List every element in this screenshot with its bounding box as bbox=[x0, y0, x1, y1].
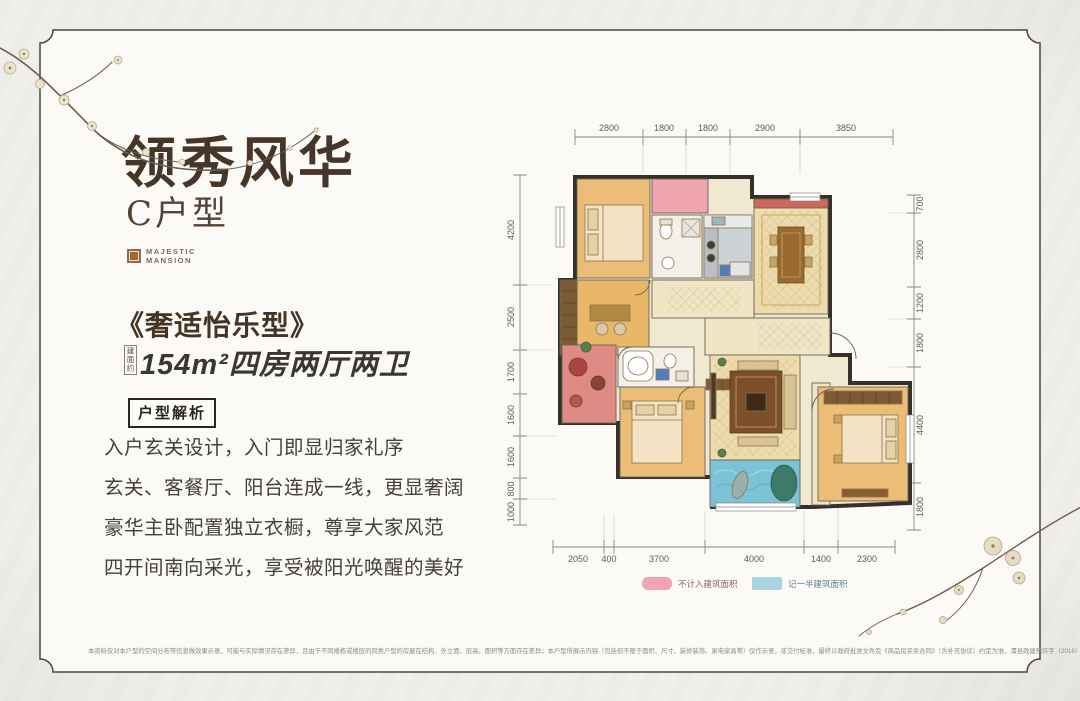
area-line: 建面约 154m²四房两厅两卫 bbox=[124, 341, 431, 383]
dim-right-5: 1800 bbox=[915, 497, 925, 517]
dim-left-5: 800 bbox=[506, 481, 516, 496]
disclaimer-text: 本资料仅对本户型的空间分布等信息做效果示意，可能与实际情况存在差异，且由于不同楼… bbox=[88, 646, 1003, 655]
dim-bottom-0: 2050 bbox=[568, 554, 588, 564]
area-prefix: 建面约 bbox=[124, 345, 137, 375]
unit-type-subtitle: C户型 bbox=[126, 186, 229, 235]
analysis-badge: 户型解析 bbox=[128, 398, 216, 428]
dim-left-0: 4200 bbox=[506, 220, 516, 240]
dim-left-3: 1600 bbox=[506, 405, 516, 425]
style-name: 《奢适怡乐型》 bbox=[116, 304, 319, 344]
area-text: 154m²四房两厅两卫 bbox=[140, 341, 409, 383]
brand-words: MAJESTIC MANSION bbox=[146, 247, 196, 266]
dim-top-4: 3850 bbox=[836, 123, 856, 133]
dim-top-3: 2900 bbox=[755, 123, 775, 133]
legend-swatch-blue bbox=[752, 577, 782, 590]
dim-left-4: 1600 bbox=[506, 447, 516, 467]
balcony-north-pink bbox=[652, 179, 708, 213]
feature-line: 豪华主卧配置独立衣橱，尊享大家风范 bbox=[104, 508, 464, 548]
dim-right-4: 4400 bbox=[915, 415, 925, 435]
dim-right-1: 2800 bbox=[915, 240, 925, 260]
brand-line1: MAJESTIC bbox=[146, 247, 196, 256]
dim-top-0: 2800 bbox=[599, 123, 619, 133]
dim-right-3: 1800 bbox=[915, 333, 925, 353]
dim-left-6: 1000 bbox=[506, 502, 516, 522]
dim-left-2: 1700 bbox=[506, 362, 516, 382]
feature-line: 玄关、客餐厅、阳台连成一线，更显奢阔 bbox=[104, 468, 464, 508]
terrace-pink bbox=[562, 345, 616, 423]
dim-bottom-2: 3700 bbox=[649, 554, 669, 564]
dims-right: 700 2800 1200 1800 4400 1800 bbox=[915, 196, 925, 517]
dim-right-2: 1200 bbox=[915, 293, 925, 313]
dim-top-2: 1800 bbox=[698, 123, 718, 133]
dims-bottom: 2050 400 3700 4000 1400 2300 bbox=[568, 554, 877, 564]
dims-left: 4200 2500 1700 1600 1600 800 1000 bbox=[506, 220, 516, 522]
feature-line: 四开间南向采光，享受被阳光唤醒的美好 bbox=[104, 548, 464, 588]
dim-bottom-5: 2300 bbox=[857, 554, 877, 564]
legend-swatch-pink bbox=[642, 577, 672, 590]
feature-line: 入户玄关设计，入门即显归家礼序 bbox=[104, 428, 464, 468]
legend-label-pink: 不计入建筑面积 bbox=[678, 579, 738, 589]
dim-right-0: 700 bbox=[915, 196, 925, 211]
floorplan: 2800 1800 1800 2900 3850 4200 2500 1700 … bbox=[490, 115, 940, 615]
legend-label-blue: 记一半建筑面积 bbox=[788, 579, 848, 589]
brand-line2: MANSION bbox=[146, 256, 196, 265]
dim-top-1: 1800 bbox=[654, 123, 674, 133]
legend: 不计入建筑面积 记一半建筑面积 bbox=[642, 577, 848, 590]
dim-bottom-4: 1400 bbox=[811, 554, 831, 564]
dims-top: 2800 1800 1800 2900 3850 bbox=[599, 123, 856, 133]
brand-seal-icon bbox=[127, 249, 141, 263]
dim-left-1: 2500 bbox=[506, 307, 516, 327]
dim-bottom-1: 400 bbox=[601, 554, 616, 564]
brand-logo: MAJESTIC MANSION bbox=[127, 247, 196, 266]
dim-bottom-3: 4000 bbox=[744, 554, 764, 564]
feature-list: 入户玄关设计，入门即显归家礼序 玄关、客餐厅、阳台连成一线，更显奢阔 豪华主卧配… bbox=[104, 428, 464, 588]
